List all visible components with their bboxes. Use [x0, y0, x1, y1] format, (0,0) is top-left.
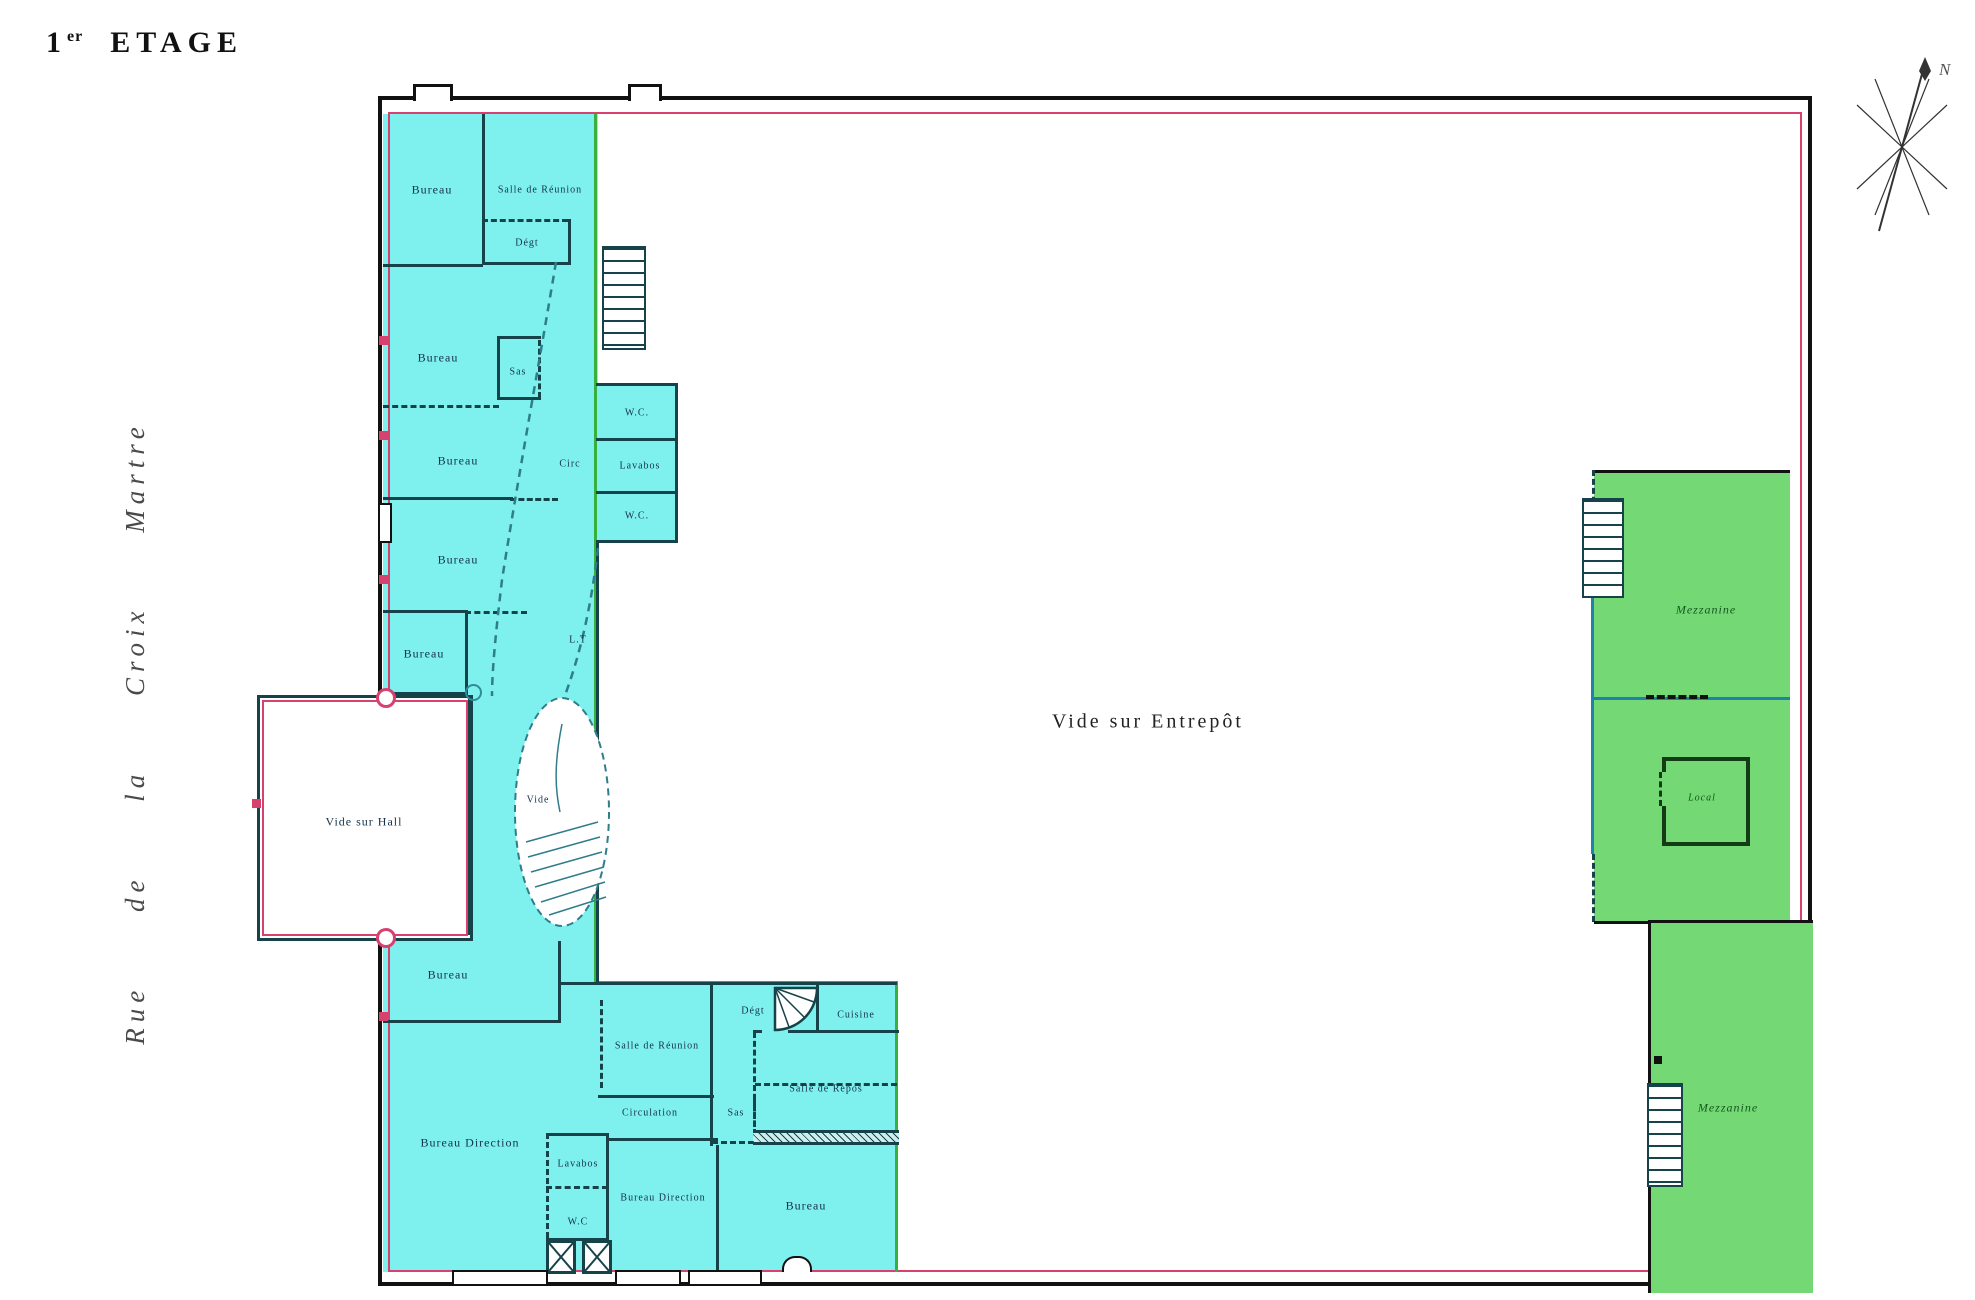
room-label-cuisine: Cuisine	[837, 1010, 875, 1021]
wall	[468, 695, 472, 935]
window	[378, 503, 392, 543]
boundary-line	[895, 981, 898, 1272]
fan-staircase	[772, 985, 820, 1033]
wall	[560, 982, 897, 985]
compass-north-label: N	[1938, 60, 1952, 79]
floor-plan: 1er ETAGE Rue de la Croix Martre	[0, 0, 1975, 1300]
wall	[383, 610, 467, 613]
room-label-wc-2: W.C.	[625, 511, 649, 522]
dashed-wall	[600, 1000, 603, 1088]
window-mark	[379, 1012, 388, 1021]
dashed-wall	[546, 1186, 608, 1189]
window-mark	[252, 799, 261, 808]
room-label-bureau-direction-1: Bureau Direction	[421, 1136, 520, 1151]
wall	[608, 1138, 718, 1141]
room-label-bureau-direction-2: Bureau Direction	[620, 1193, 705, 1204]
room-label-lavabos-1: Lavabos	[620, 461, 661, 472]
title-ordinal: er	[67, 28, 83, 45]
hatched-wall	[753, 1133, 899, 1142]
wall	[716, 1145, 719, 1272]
dashed-wall	[546, 1133, 549, 1238]
room-label-bureau-7: Bureau	[786, 1199, 827, 1214]
door-recess	[452, 1270, 548, 1286]
room-label-local: Local	[1688, 793, 1716, 804]
room-label-mezzanine-2: Mezzanine	[1698, 1101, 1758, 1116]
window-mark	[379, 431, 388, 440]
door-recess	[615, 1270, 681, 1286]
roof-mark	[413, 84, 453, 101]
wall	[546, 1133, 608, 1136]
room-label-sas-1: Sas	[510, 367, 527, 378]
room-label-wc-3: W.C	[568, 1217, 589, 1228]
room-label-bureau-5: Bureau	[404, 647, 445, 662]
window-mark	[379, 336, 388, 345]
room-label-local-technique: L.T	[569, 635, 587, 646]
room-label-bureau-1: Bureau	[412, 183, 453, 198]
room-label-wc-1: W.C.	[625, 408, 649, 419]
room-label-vide-stair: Vide	[527, 795, 550, 806]
column-marker	[1654, 1056, 1662, 1064]
dashed-wall	[1646, 695, 1708, 699]
wall	[482, 114, 485, 262]
room-label-bureau-4: Bureau	[438, 553, 479, 568]
title-number: 1	[46, 26, 67, 59]
corridor-curve	[480, 250, 620, 710]
window-mark	[379, 575, 388, 584]
street-name: Rue de la Croix Martre	[120, 388, 160, 1078]
room-label-salle-reunion-1: Salle de Réunion	[498, 185, 582, 196]
wall	[383, 1020, 561, 1023]
room-label-sas-2: Sas	[728, 1108, 745, 1119]
mezzanine-edge-blue	[1591, 574, 1594, 854]
door-recess	[688, 1270, 762, 1286]
area-label-vide-sur-entrepot: Vide sur Entrepôt	[1052, 711, 1244, 734]
room-label-vide-sur-hall: Vide sur Hall	[326, 815, 403, 830]
dashed-wall	[482, 219, 568, 222]
entrance-arc	[782, 1256, 812, 1272]
room-label-bureau-3: Bureau	[438, 454, 479, 469]
door-swing-marker	[465, 684, 482, 701]
elliptical-staircase	[510, 694, 614, 934]
duct	[582, 1240, 612, 1274]
room-label-circ: Circ	[559, 459, 580, 470]
room-label-lavabos-2: Lavabos	[558, 1159, 599, 1170]
wall	[465, 610, 468, 695]
staircase	[602, 246, 646, 350]
compass-rose: N	[1845, 55, 1975, 240]
room-label-bureau-6: Bureau	[428, 968, 469, 983]
room-label-bureau-2: Bureau	[418, 351, 459, 366]
dashed-wall	[712, 1141, 754, 1144]
room-label-mezzanine-1: Mezzanine	[1676, 603, 1736, 618]
door-gap	[1659, 772, 1668, 806]
title-text: ETAGE	[110, 26, 243, 59]
room-label-salle-de-repos: Salle de Repos	[789, 1084, 862, 1095]
duct	[546, 1240, 576, 1274]
room-label-circulation: Circulation	[622, 1108, 678, 1119]
roof-mark	[628, 84, 662, 101]
room-label-degt-2: Dégt	[741, 1006, 764, 1017]
column-marker	[376, 928, 396, 948]
staircase	[1647, 1083, 1683, 1187]
wall	[675, 383, 678, 543]
dashed-wall	[753, 1032, 756, 1144]
room-label-degt-1: Dégt	[515, 238, 538, 249]
wall	[598, 1095, 714, 1098]
dashed-wall	[1592, 854, 1595, 922]
wall	[753, 1142, 899, 1145]
room-label-salle-reunion-2: Salle de Réunion	[615, 1041, 699, 1052]
column-marker	[376, 688, 396, 708]
page-title: 1er ETAGE	[46, 26, 243, 60]
staircase	[1582, 498, 1624, 598]
wall	[383, 264, 483, 267]
wall	[710, 982, 713, 1146]
